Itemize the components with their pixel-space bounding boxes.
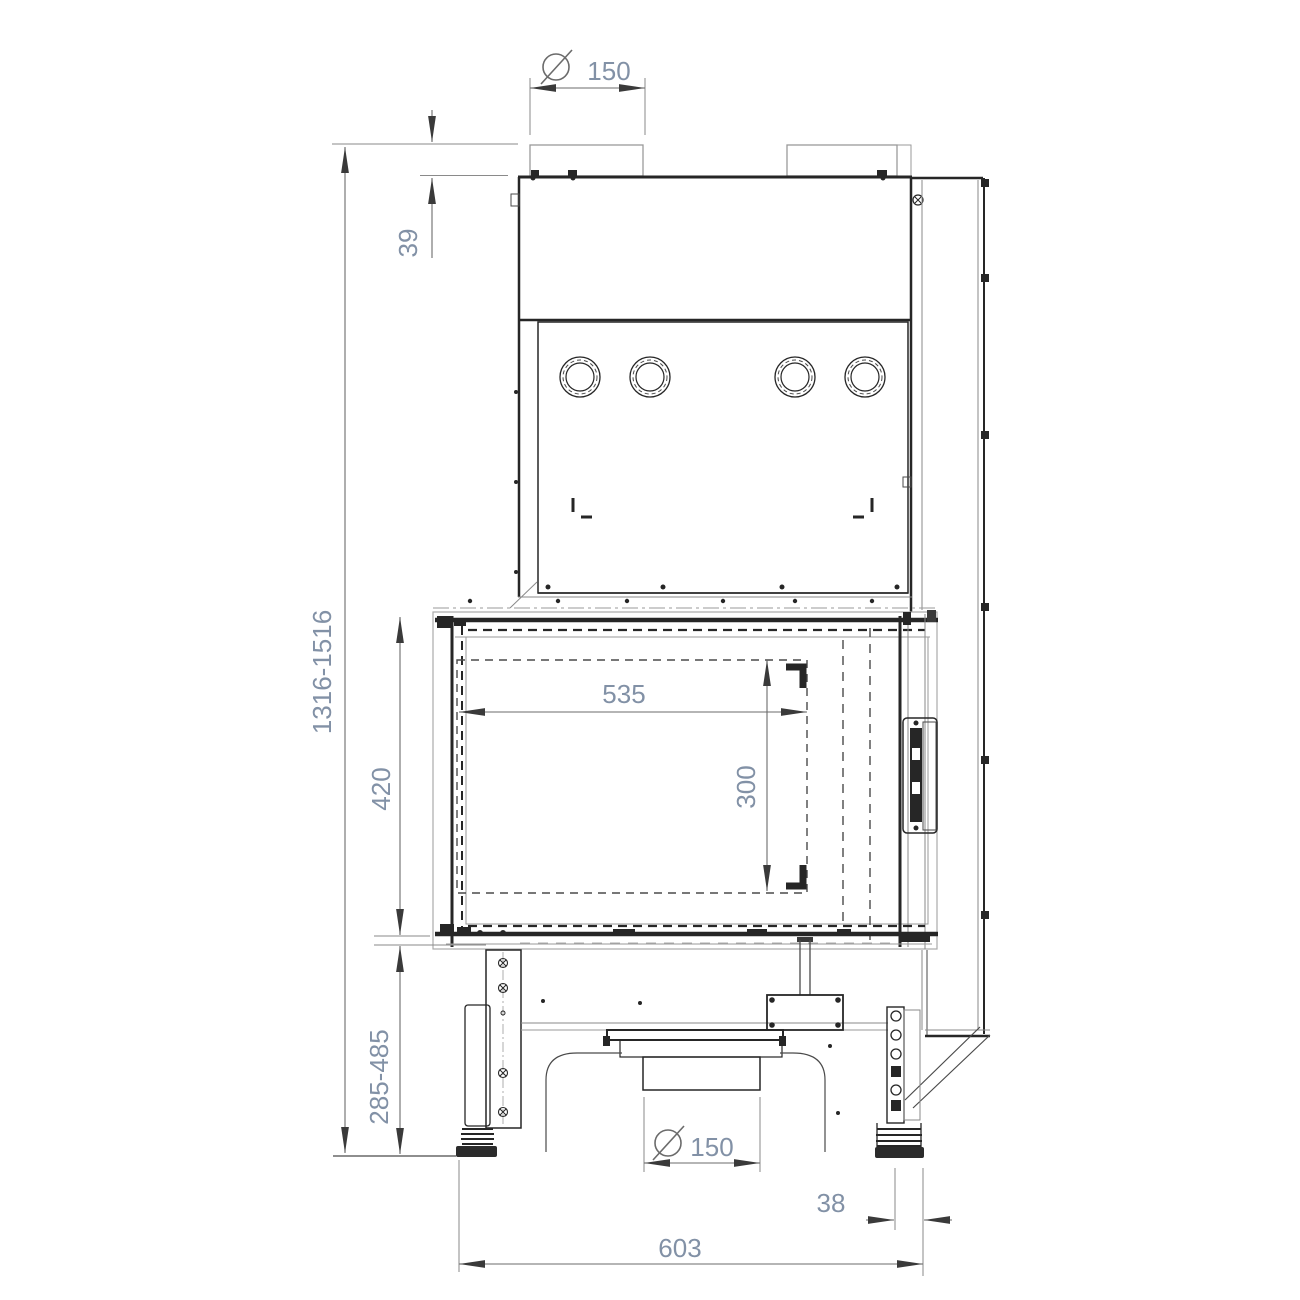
dim-label: 39	[393, 229, 423, 258]
flue-collar-left	[530, 145, 643, 176]
dim-flue-diameter-top: 150	[530, 50, 645, 88]
dim-opening-width: 535	[459, 679, 807, 712]
side-panel	[905, 178, 990, 1108]
dim-base-width: 603	[459, 1233, 923, 1264]
dim-label: 420	[366, 767, 396, 810]
corner-mark-icon	[786, 667, 803, 688]
firebox-door	[433, 599, 938, 949]
dim-label: 285-485	[364, 1029, 394, 1124]
dim-label: 603	[658, 1233, 701, 1263]
technical-drawing-canvas: 150 39 1316-1516 420 285-485 535	[0, 0, 1300, 1300]
dimension-annotations: 150 39 1316-1516 420 285-485 535	[307, 50, 952, 1276]
adjustable-foot-left	[456, 1005, 497, 1157]
air-outlet-hole-icon	[775, 357, 815, 397]
diameter-symbol-icon	[541, 50, 572, 84]
dim-label: 300	[731, 765, 761, 808]
fireplace-insert-outline	[433, 145, 990, 1158]
dim-base-height: 285-485	[364, 946, 400, 1154]
dim-side-offset: 38	[817, 1188, 952, 1220]
dim-door-height: 420	[366, 617, 400, 935]
air-intake-collar	[643, 1057, 760, 1090]
air-damper	[603, 1030, 786, 1090]
dim-air-intake-diameter: 150	[644, 1126, 760, 1163]
flue-collar-right	[787, 145, 911, 176]
dim-total-height: 1316-1516	[307, 147, 345, 1153]
corner-mark-icon	[786, 865, 803, 886]
control-rod	[767, 937, 843, 1030]
fireplace-dimension-drawing: 150 39 1316-1516 420 285-485 535	[0, 0, 1300, 1300]
dim-label: 150	[690, 1132, 733, 1162]
air-outlet-hole-icon	[560, 357, 600, 397]
diameter-symbol-icon	[653, 1126, 684, 1160]
dim-label: 150	[587, 56, 630, 86]
air-outlet-hole-icon	[845, 357, 885, 397]
air-outlet-hole-icon	[630, 357, 670, 397]
base-assembly	[456, 937, 924, 1158]
dim-opening-height: 300	[731, 660, 767, 891]
dim-label: 535	[602, 679, 645, 709]
dim-label: 38	[817, 1188, 846, 1218]
dim-collar-height: 39	[393, 110, 432, 258]
dim-label: 1316-1516	[307, 610, 337, 734]
convection-panel	[510, 322, 912, 608]
